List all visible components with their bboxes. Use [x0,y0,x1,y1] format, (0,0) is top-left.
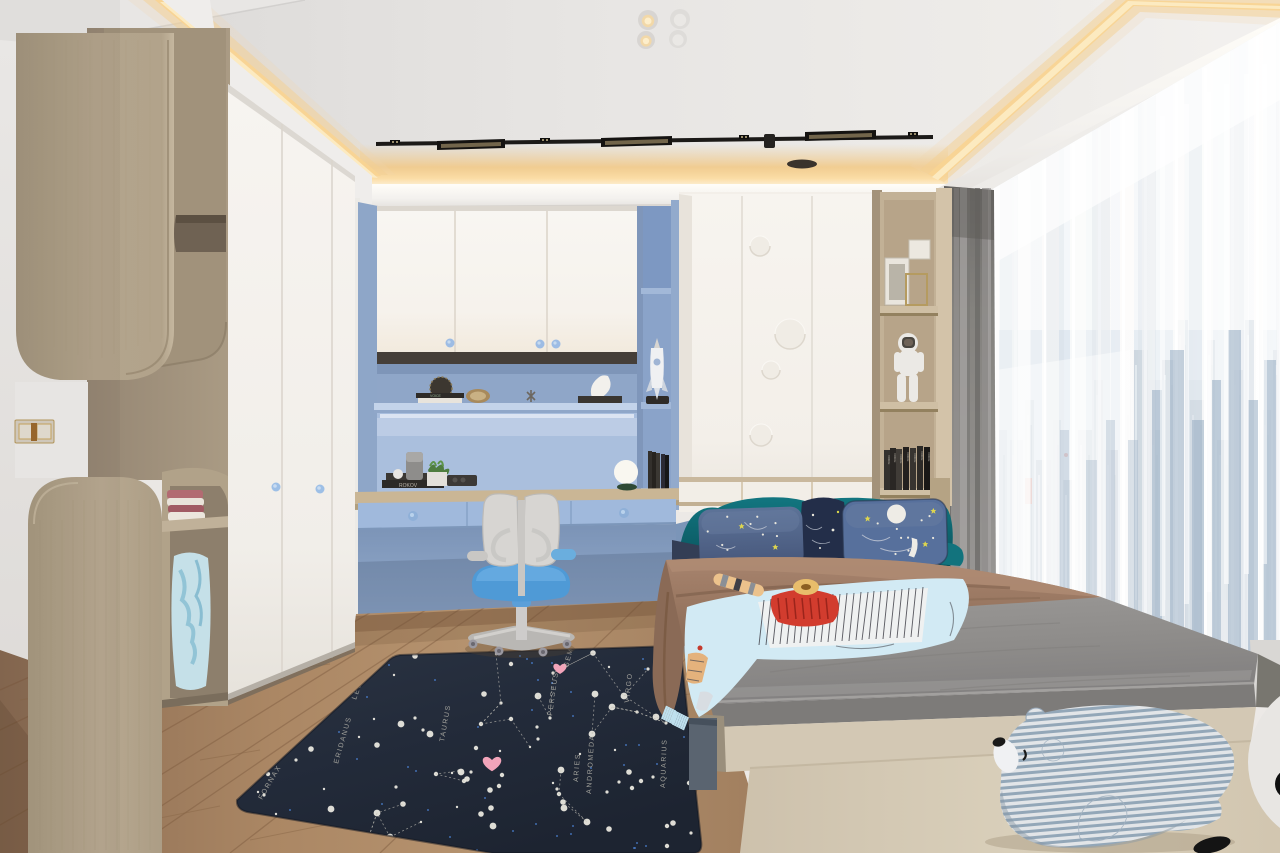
svg-text:VOICE: VOICE [927,452,931,461]
svg-text:VOICE: VOICE [906,452,910,461]
svg-text:VOICE: VOICE [899,454,903,463]
svg-text:VOICE: VOICE [913,453,917,462]
svg-text:VOICE: VOICE [430,394,442,398]
svg-text:ROKOV: ROKOV [399,483,418,489]
svg-text:VOICE: VOICE [920,451,924,460]
